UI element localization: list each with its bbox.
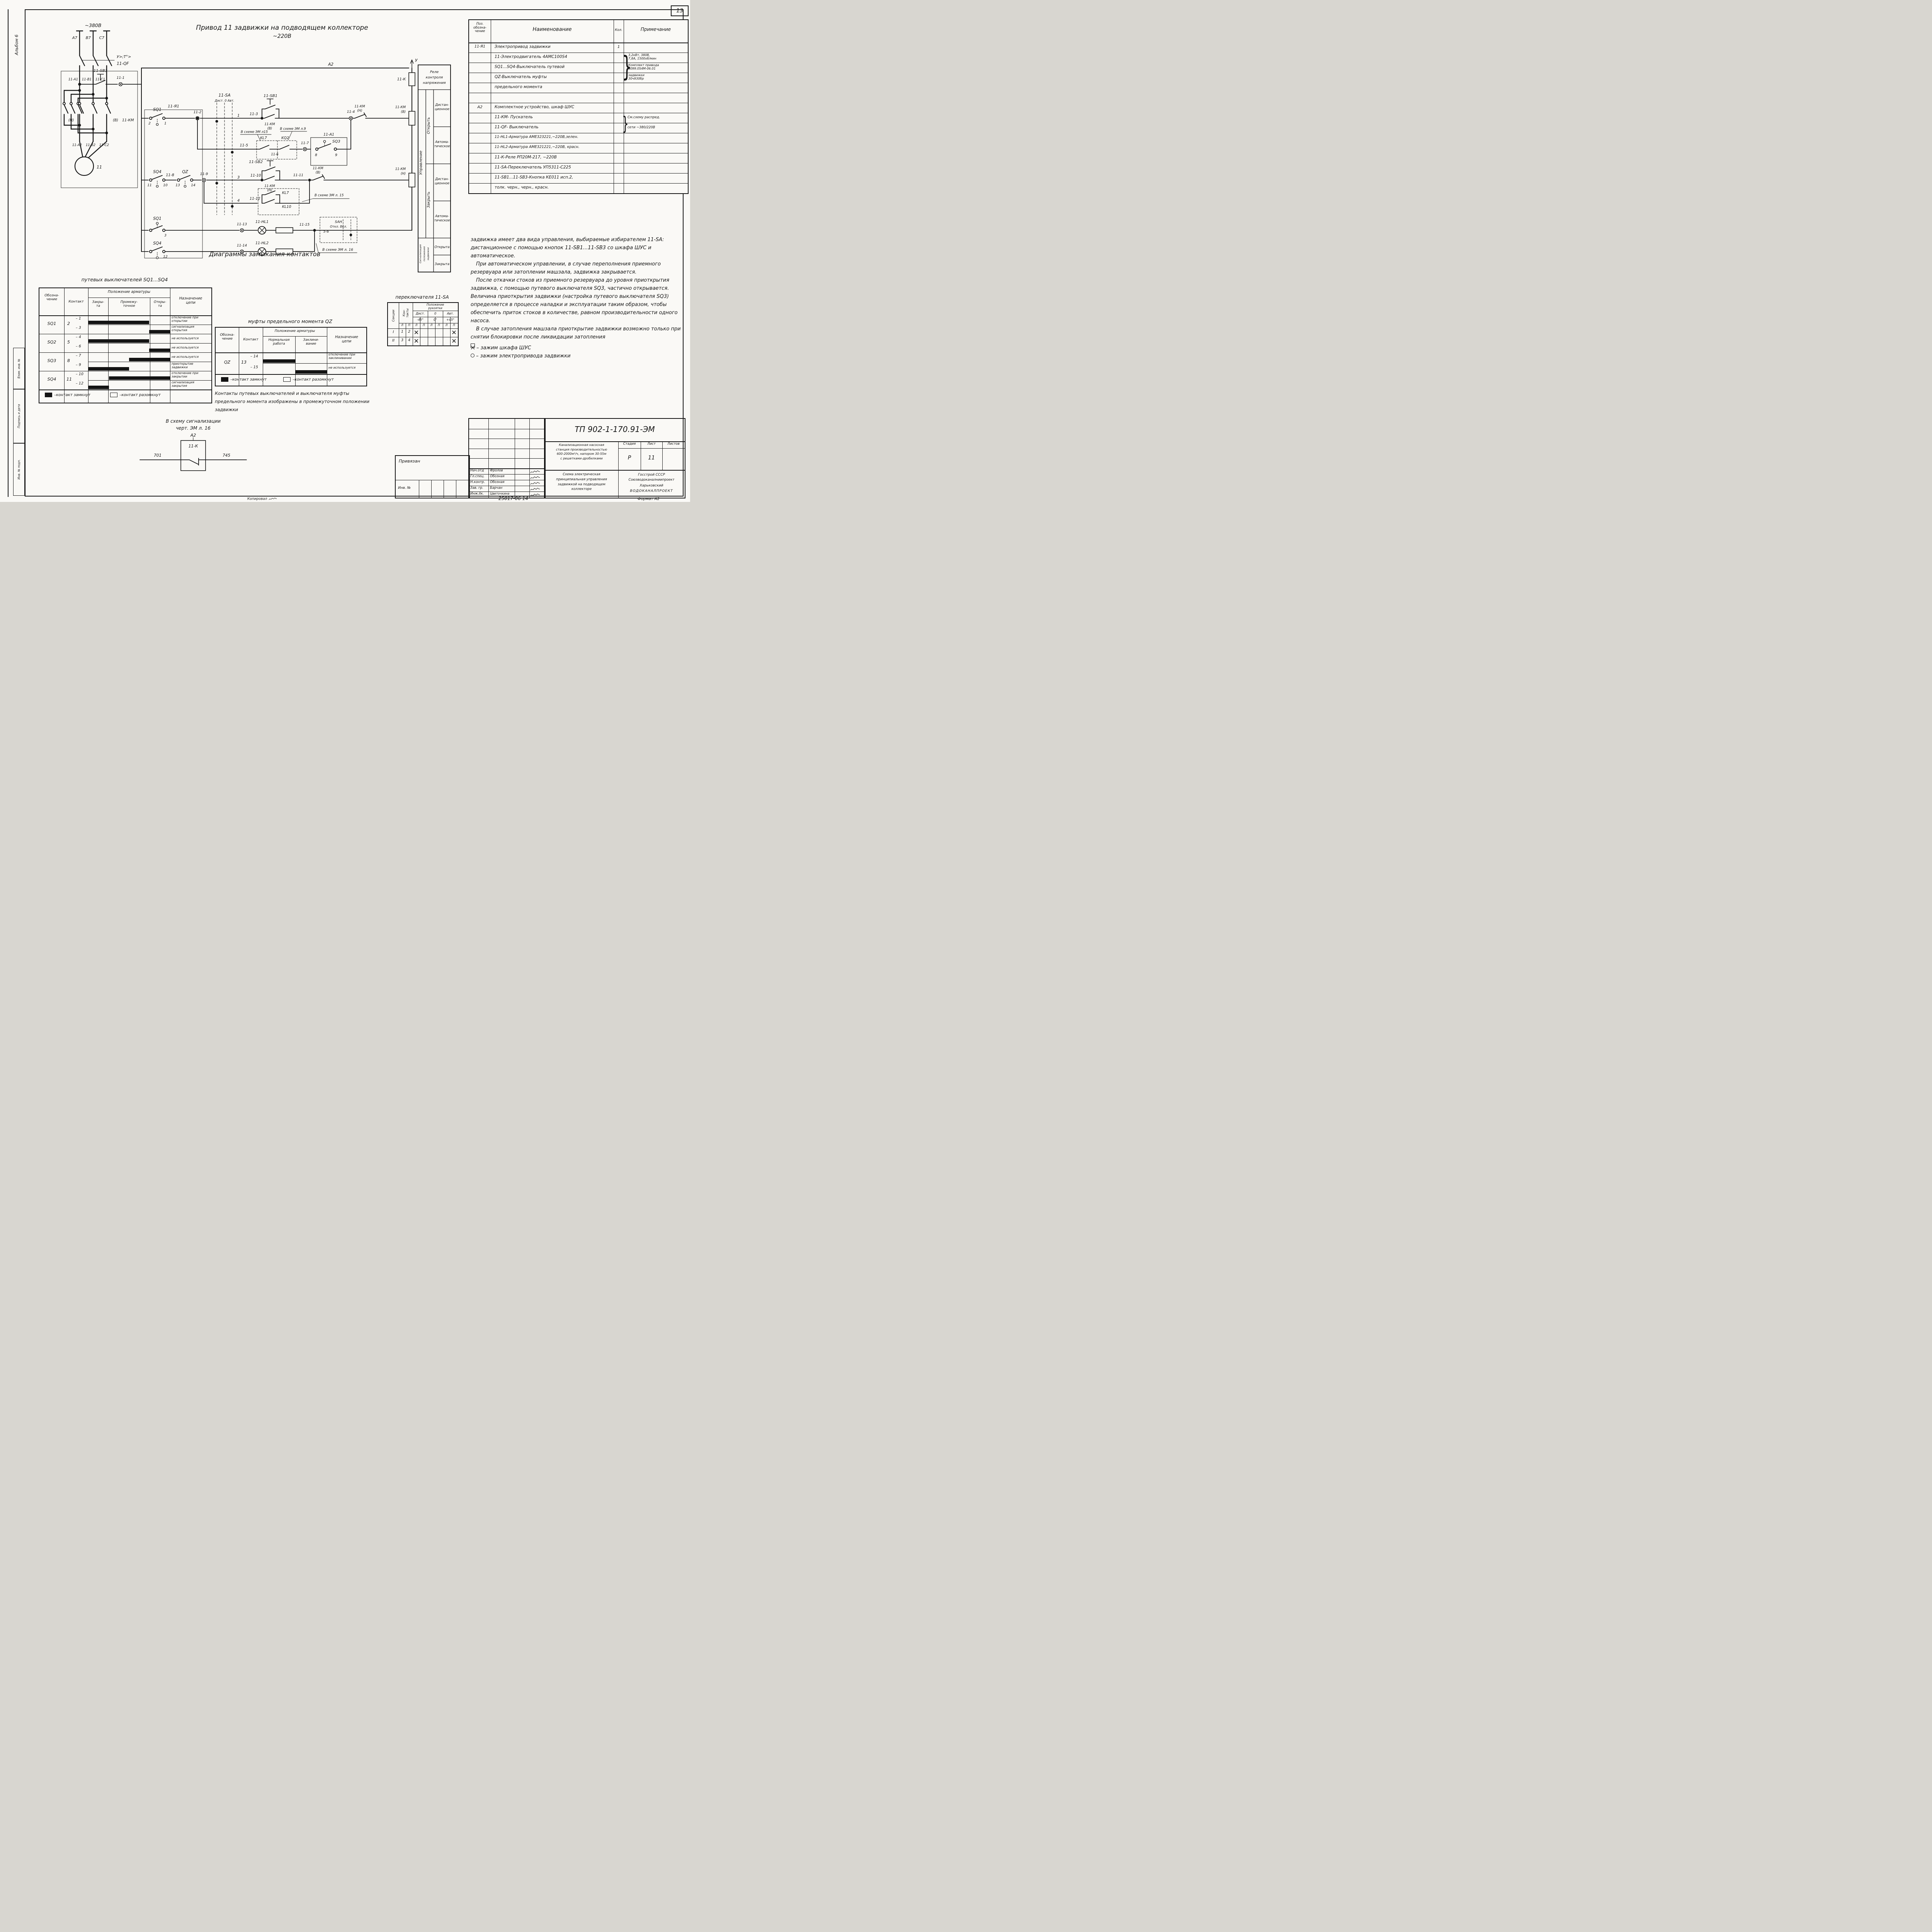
t1-p2: не используется bbox=[172, 346, 211, 350]
parts-header-pos: Поз. обозна- чение bbox=[469, 22, 491, 34]
legend-open-text: –контакт разомкнут bbox=[119, 393, 160, 397]
t1-header-open: Откры- та bbox=[150, 301, 170, 308]
role: Нач.отд bbox=[470, 469, 484, 473]
neutral-u-label: У bbox=[415, 58, 418, 63]
role-name: Обозная bbox=[490, 475, 505, 479]
parts-header-name: Наименование bbox=[491, 27, 614, 33]
qf-label: 11-QF bbox=[117, 61, 129, 66]
stamp-vzam-label: Взам. инв. № bbox=[17, 359, 21, 379]
note-em15b-label: В схеме ЭМ л. 15 bbox=[315, 194, 344, 197]
ft-relay-line2: контроля bbox=[426, 76, 443, 80]
signature bbox=[530, 492, 540, 499]
t2-header-jam: Заклини- вание bbox=[295, 338, 327, 346]
doc-designation: ТП 902-1-170.91-ЭМ bbox=[545, 425, 685, 434]
sq4-contact-10: 10 bbox=[163, 184, 168, 187]
schematic-canvas: ~380В А7 В7 С7 У>;Т°> 11-QF 11-А1 11-В1 … bbox=[26, 22, 466, 277]
wire-11-8-label: 11-8 bbox=[166, 173, 174, 177]
selfhold-close-label1: 11-КМ bbox=[264, 184, 275, 188]
phase-c7-label: С7 bbox=[99, 36, 105, 40]
t1-sub2: – 9 bbox=[76, 363, 87, 367]
t3-d1: -45° bbox=[413, 318, 428, 322]
contact-kl10-label: KL10 bbox=[282, 205, 291, 209]
ft-zakryta: Закрыта bbox=[435, 262, 449, 266]
t2-sub2: – 15 bbox=[250, 366, 263, 370]
contactor-close-coil bbox=[409, 173, 415, 187]
t1-dev: SQ2 bbox=[39, 340, 64, 345]
contact-bar bbox=[129, 358, 170, 361]
wire-11-6-label: 11-6 bbox=[271, 153, 279, 156]
titleblock-signatures: Нач.отд Фролов Гл.спец. Обозная Н.контр.… bbox=[468, 418, 546, 498]
legend-closed-text: –контакт замкнут bbox=[54, 393, 90, 397]
ft-avt1a: Автома- bbox=[435, 140, 449, 144]
org-line2: Союзводоканалниипроект bbox=[618, 478, 685, 482]
switch-sq4b-label: SQ4 bbox=[153, 241, 162, 246]
part-name: Электропривод задвижки bbox=[495, 45, 612, 49]
sq3-contact-8: 8 bbox=[315, 153, 317, 157]
t3-row-contact: 4 bbox=[406, 338, 413, 343]
part-name: 11-HL2-Арматура АМЕ321221,~220В, красн. bbox=[495, 145, 613, 150]
diagrams-sub1: путевых выключателей SQ1...SQ4 bbox=[39, 277, 211, 282]
t3-g1: Дист. bbox=[413, 312, 428, 316]
contactor-v-label: (В) bbox=[113, 118, 118, 122]
t1-header-obozn: Обозна- чение bbox=[39, 294, 64, 301]
part-name: 11-SА-Переключатель УП5311-С225 bbox=[495, 165, 612, 170]
lamp-hl1-label: 11-HL1 bbox=[255, 220, 269, 224]
cabinet-terminal-icon bbox=[471, 344, 475, 348]
selfhold-open-label1: 11-КМ bbox=[264, 122, 275, 126]
phase-b1-label: 11-В1 bbox=[82, 78, 92, 82]
parts-header-qty: Кол. bbox=[614, 29, 624, 32]
ft-dist1a: Дистан- bbox=[435, 103, 449, 107]
part-pos: А2 bbox=[469, 105, 491, 109]
sq1-contact-2: 2 bbox=[148, 122, 151, 126]
t3-col-l: Л bbox=[443, 324, 450, 327]
terminal-11-7-label: 11-7 bbox=[301, 141, 309, 145]
switch-sq4-label: SQ4 bbox=[153, 170, 162, 174]
selector-sa-label: 11-SА bbox=[219, 93, 231, 98]
org-line4: ВОДОКАНАЛПРОЕКТ bbox=[618, 489, 685, 493]
interlock-n-label2: (Н) bbox=[357, 109, 362, 113]
part-name: 11-HL1-Арматура АМЕ323221,~220В,зелен. bbox=[495, 135, 613, 139]
wire-11-15-label: 11-15 bbox=[299, 223, 310, 227]
parts-brace: } bbox=[622, 114, 629, 133]
part-name: толк. черн., черн., красн. bbox=[495, 185, 612, 190]
parts-brace: } bbox=[622, 53, 632, 80]
line-1-number: 1 bbox=[237, 114, 240, 118]
line-4-number: 4 bbox=[237, 199, 240, 203]
t2-header-norm: Нормальная работа bbox=[263, 338, 295, 346]
ft-sig1: Сигнализация bbox=[419, 245, 422, 264]
t2-header-obozn: Обозна- чение bbox=[216, 333, 239, 341]
format-label: Формат А2 bbox=[638, 497, 660, 501]
interlock-v-label2: (В) bbox=[316, 171, 320, 175]
t3-mark: ✕ bbox=[450, 330, 458, 336]
ft-avt2b: тическое bbox=[434, 219, 450, 223]
ft-avt1b: тическое bbox=[434, 145, 450, 148]
t3-d3: +45° bbox=[443, 318, 458, 322]
paragraph-1: задвижка имеет два вида управления, выби… bbox=[471, 236, 686, 260]
san-switch-label: SАН bbox=[335, 220, 342, 224]
wire-11-5-label: 11-5 bbox=[240, 143, 248, 148]
open-contact-icon bbox=[283, 377, 291, 382]
t1-p2: приоткрытие задвижки bbox=[172, 362, 211, 369]
wire-11-11-label: 11-11 bbox=[293, 173, 303, 177]
motor-number-label: 11 bbox=[97, 165, 102, 170]
t1-p1: отключение при закрытии bbox=[172, 372, 211, 379]
legend-open-text: –контакт разомкнут bbox=[293, 378, 333, 382]
phase-a2-label: 11-А2 bbox=[72, 143, 82, 147]
sq1-contact-3: 3 bbox=[164, 234, 167, 238]
t1-sub2: – 12 bbox=[76, 382, 88, 386]
part-note: задвижки 30ч930бр bbox=[628, 74, 687, 81]
part-note: Комплект привода 6099.0S4М-06.01 bbox=[628, 64, 687, 71]
closed-contact-icon bbox=[221, 377, 228, 382]
sq4-contact-11: 11 bbox=[147, 184, 151, 187]
t3-row-contact: 2 bbox=[406, 330, 413, 334]
stadia-header: Стадия bbox=[618, 442, 641, 446]
parts-header-note: Примечание bbox=[624, 27, 688, 32]
t1-legend: –контакт замкнут –контакт разомкнут bbox=[45, 393, 211, 397]
t3-sections-wrap: Секции bbox=[388, 303, 399, 328]
ft-zakryt: Закрыть bbox=[427, 192, 431, 208]
t1-sub2: – 3 bbox=[76, 326, 87, 330]
t3-row-section: II bbox=[388, 338, 399, 343]
t3-row-section: I bbox=[388, 330, 399, 334]
description-text: задвижка имеет два вида управления, выби… bbox=[471, 236, 686, 360]
t1-sub1: – 4 bbox=[76, 335, 87, 340]
part-qty: 1 bbox=[614, 45, 624, 49]
sq1-contact-1: 1 bbox=[164, 122, 167, 126]
qz-contacts-table: Обозна- чение Контакт Положение арматуры… bbox=[215, 327, 367, 386]
open-contact-icon bbox=[110, 393, 117, 397]
t1-header-closed: Закры- та bbox=[88, 301, 108, 308]
t3-col-l: Л bbox=[413, 324, 420, 327]
control-section bbox=[80, 60, 415, 259]
paragraph-4: В случае затопления машзала приоткрытие … bbox=[471, 325, 686, 341]
contact-bar bbox=[88, 386, 109, 389]
t1-p2: сигнализация открытия bbox=[172, 325, 211, 332]
t2-p2: не используется bbox=[328, 366, 366, 370]
page-number: 13 bbox=[676, 8, 683, 14]
contact-bar bbox=[263, 359, 296, 363]
t3-col-p: П bbox=[450, 324, 458, 327]
drive-terminal-icon bbox=[471, 354, 474, 357]
relay-11K-coil bbox=[409, 73, 415, 86]
t3-row-contact: 1 bbox=[399, 330, 406, 334]
contactor-open-coil bbox=[409, 111, 415, 125]
ft-upravlenie: Управление bbox=[419, 151, 423, 175]
t2-header-naznach: Назначение цепи bbox=[327, 335, 366, 344]
contact-bar bbox=[296, 370, 327, 374]
part-pos: 11-Я1 bbox=[469, 45, 491, 49]
switch-sq3-label: SQ3 bbox=[332, 139, 340, 144]
title-block: Привязан Инв. № Нач.отд Фролов Гл.спец. … bbox=[395, 418, 684, 497]
part-name: QZ-Выключатель муфты bbox=[495, 75, 612, 80]
ft-sig3: задвижки bbox=[427, 247, 430, 260]
role-name: Барчан bbox=[490, 486, 502, 490]
legend-terminal-drive-text: – зажим электропривода задвижки bbox=[476, 353, 571, 359]
legend-terminal-cabinet: – зажим шкафа ШУС bbox=[471, 344, 686, 352]
t3-col-p: П bbox=[406, 324, 413, 327]
coil-open-label2: (В) bbox=[401, 110, 406, 114]
part-name: 11-QF- Выключатель bbox=[495, 125, 612, 130]
box-11a1-label: 11-А1 bbox=[323, 133, 334, 137]
selfhold-close-label2: (Н) bbox=[267, 189, 272, 192]
terminal-701-label: 701 bbox=[154, 453, 162, 458]
part-name: 11-SВ1...11-SВ3-Кнопка КЕ011 исп.2, bbox=[495, 175, 612, 180]
terminal-11-13-label: 11-13 bbox=[237, 223, 247, 226]
contact-kl7-label: KL7 bbox=[260, 136, 267, 140]
t1-common: 8 bbox=[67, 359, 75, 363]
t3-col-p: П bbox=[435, 324, 443, 327]
terminal-11-4-label: 11-4 bbox=[347, 110, 355, 114]
terminal-11-9-label: 11-9 bbox=[200, 172, 208, 176]
note-em15-label: В схеме ЭМ л15 bbox=[241, 130, 268, 134]
inv-label: Инв. № bbox=[398, 486, 411, 490]
phase-b2-label: 11-В2 bbox=[86, 143, 95, 147]
sa-selector-table: Секции Кон- такты Положение рукоятки Дис… bbox=[387, 302, 459, 346]
t3-g3: Авт. bbox=[443, 312, 458, 316]
lamp-hl2-label: 11-HL2 bbox=[255, 241, 269, 245]
signal-note-line1: В схему сигнализации bbox=[166, 418, 221, 424]
diagrams-sub2: муфты предельного момента QZ bbox=[215, 318, 366, 324]
t2-dev: QZ bbox=[216, 360, 239, 365]
sq3-contact-9: 9 bbox=[335, 153, 337, 157]
role-name: Цветочкина bbox=[490, 492, 509, 496]
part-name: Комплектное устройство, шкаф ШУС bbox=[495, 105, 612, 110]
selfhold-open-label2: (В) bbox=[267, 127, 272, 131]
role: Зав. гр. bbox=[470, 486, 483, 490]
t1-p1: отключение при открытии bbox=[172, 316, 211, 323]
paragraph-2: При автоматическом управлении, в случае … bbox=[471, 260, 686, 276]
t2-legend: –контакт замкнут –контакт разомкнут bbox=[221, 377, 366, 382]
album-label: Альбом 6 bbox=[14, 34, 19, 55]
t3-g2: 0 bbox=[428, 312, 443, 316]
page-number-box: 13 bbox=[671, 5, 689, 16]
san-terminals-label: 5-6 bbox=[323, 230, 329, 234]
t2-sub1: – 14 bbox=[250, 355, 263, 359]
contact-kl7b-label: KL7 bbox=[282, 191, 289, 195]
phase-b7-label: В7 bbox=[86, 36, 91, 40]
interlock-n-label1: 11-КМ bbox=[354, 105, 365, 109]
part-name: предельного момента bbox=[495, 85, 612, 90]
wire-11-12-label: 11-12 bbox=[250, 197, 260, 201]
contact-bar bbox=[88, 367, 129, 371]
part-name: 11-Электродвигатель 4АМС100S4 bbox=[495, 55, 612, 60]
role: Н.контр. bbox=[470, 481, 485, 485]
parts-table: Поз. обозна- чение Наименование Кол. При… bbox=[468, 19, 689, 194]
listov-header: Листов bbox=[662, 442, 685, 446]
t3-d2: 0° bbox=[428, 318, 443, 322]
stamp-podpis: Подпись и дата bbox=[13, 389, 25, 444]
qf-release-note: У>;Т°> bbox=[117, 55, 131, 59]
switch-sq1-label: SQ1 bbox=[153, 107, 162, 112]
project-name: Канализационная насосная станция произво… bbox=[546, 443, 617, 461]
terminal-11-2-label: 11-2 bbox=[194, 111, 202, 114]
titleblock-annex: Привязан Инв. № bbox=[395, 455, 470, 498]
contact-bar bbox=[149, 349, 170, 352]
contact-bar bbox=[149, 330, 170, 333]
t3-mark: ✕ bbox=[450, 338, 458, 344]
t1-sub1: – 7 bbox=[76, 354, 87, 358]
t1-header-kontakt: Контакт bbox=[64, 300, 88, 304]
t1-common: 11 bbox=[66, 377, 75, 382]
qz-contact-14: 14 bbox=[191, 184, 196, 187]
t1-p1: не используется bbox=[172, 337, 211, 340]
role-name: Фролов bbox=[490, 469, 503, 473]
t3-col-l: Л bbox=[428, 324, 435, 327]
ft-avt2a: Автома- bbox=[435, 214, 449, 218]
part-name: 11-К-Реле РП20М-217, ~220В bbox=[495, 155, 612, 160]
t1-header-naznach: Назначение цепи bbox=[170, 297, 211, 305]
drive-box-label: 11-Я1 bbox=[168, 104, 179, 109]
ft-dist2a: Дистан- bbox=[435, 177, 449, 181]
t2-header-pos: Положение арматуры bbox=[263, 329, 327, 333]
t1-common: 5 bbox=[67, 340, 75, 345]
ft-dist1b: ционное bbox=[435, 107, 449, 111]
cabinet-a2-label: А2 bbox=[328, 62, 333, 67]
phase-c1-label: 11-С1 bbox=[95, 78, 105, 82]
t1-header-mid: Промежу- точное bbox=[108, 301, 150, 308]
t1-p1: не используется bbox=[172, 355, 211, 359]
part-note: 3,2кВт, 380В, 7,8А, 1500об/мин bbox=[628, 54, 687, 61]
button-sb2-label: 11-SВ2 bbox=[249, 160, 263, 164]
scheme-name: Схема электрическая принципиальная управ… bbox=[546, 472, 617, 492]
relay-11k-label: 11-К bbox=[397, 77, 406, 82]
t1-common: 2 bbox=[67, 321, 75, 326]
ft-relay-line3: напряжения bbox=[423, 81, 446, 85]
legend-terminal-drive: – зажим электропривода задвижки bbox=[471, 352, 686, 360]
stamp-inv-label: Инв. № подл. bbox=[17, 459, 21, 480]
phase-a7-label: А7 bbox=[72, 36, 78, 40]
contacts-position-note: Контакты путевых выключателей и выключат… bbox=[215, 389, 447, 414]
org-line1: Госстрой СССР bbox=[618, 473, 685, 477]
role: Гл.спец. bbox=[470, 475, 485, 479]
part-note: См.схему распред. bbox=[628, 116, 687, 120]
t3-contacts-wrap: Кон- такты bbox=[399, 303, 413, 323]
list-value: 11 bbox=[641, 455, 662, 461]
ft-relay-line1: Реле bbox=[430, 70, 439, 74]
t3-row-contact: 3 bbox=[399, 338, 406, 343]
t3-col-p: П bbox=[420, 324, 428, 327]
t1-dev: SQ1 bbox=[39, 321, 64, 326]
t2-p1: отключение при заклинивании bbox=[328, 353, 366, 360]
stadia-value: Р bbox=[618, 455, 641, 461]
legend-terminal-cabinet-text: – зажим шкафа ШУС bbox=[476, 345, 531, 351]
list-header: Лист bbox=[641, 442, 662, 446]
paragraph-3: После откачки стоков из приемного резерв… bbox=[471, 276, 686, 325]
san-positions-label: Откл. Вкл. bbox=[330, 225, 347, 228]
t1-header-pos: Положение арматуры bbox=[88, 290, 170, 294]
t1-sub1: – 10 bbox=[76, 372, 88, 377]
t1-dev: SQ3 bbox=[39, 359, 64, 363]
switch-sq1b-label: SQ1 bbox=[153, 216, 162, 221]
diagrams-sub3: переключателя 11-SА bbox=[387, 294, 457, 300]
signal-a2-label: А2 bbox=[190, 433, 196, 438]
ft-otkryta: Открыта bbox=[434, 245, 449, 249]
note-em9-label: В схеме ЭМ л.9 bbox=[280, 127, 306, 131]
legend-closed-text: –контакт замкнут bbox=[230, 378, 267, 382]
closed-contact-icon bbox=[45, 393, 52, 397]
org-line3: Харьковский bbox=[618, 484, 685, 488]
t3-mark: ✕ bbox=[413, 338, 420, 344]
contactor-n-label: (Н) bbox=[68, 118, 74, 122]
terminal-11-14-label: 11-14 bbox=[237, 244, 247, 248]
line-3-number: 3 bbox=[237, 175, 240, 180]
t1-sub1: – 1 bbox=[76, 317, 87, 321]
t1-dev: SQ4 bbox=[39, 377, 64, 382]
terminal-11-1-label: 11-1 bbox=[117, 76, 124, 80]
coil-close-label2: (Н) bbox=[401, 172, 406, 176]
role-name: Обозная bbox=[490, 481, 505, 485]
phase-a1-label: 11-А1 bbox=[68, 78, 78, 82]
t3-mark: ✕ bbox=[413, 330, 420, 336]
kopiroval-label: Копировал bbox=[247, 497, 277, 502]
titleblock-main: ТП 902-1-170.91-ЭМ Канализационная насос… bbox=[544, 418, 685, 498]
sq-contacts-table: Обозна- чение Контакт Положение арматуры… bbox=[39, 287, 212, 403]
t3-col-l: Л bbox=[399, 324, 406, 327]
switch-qz-label: QZ bbox=[182, 170, 188, 174]
supply-voltage-label: ~380В bbox=[85, 22, 102, 28]
signal-note-line2: черт. ЭМ л. 16 bbox=[176, 425, 211, 431]
part-name: 11-КМ- Пускатель bbox=[495, 115, 612, 120]
qz-contact-13: 13 bbox=[175, 184, 180, 187]
part-name: SQ1...SQ4-Выключатель путевой bbox=[495, 65, 612, 70]
part-note: сети ~380/220В bbox=[628, 126, 687, 130]
contact-bar bbox=[88, 321, 149, 324]
role: Инж.IIк. bbox=[470, 492, 484, 496]
wire-11-3-label: 11-3 bbox=[250, 112, 258, 116]
button-sb3-label: 11-SВ3 bbox=[94, 69, 107, 73]
kopiroval-text: Копировал bbox=[247, 497, 267, 501]
privyazan-label: Привязан bbox=[399, 459, 420, 464]
signal-circuit-note: В схему сигнализации черт. ЭМ л. 16 А2 1… bbox=[135, 417, 251, 478]
t1-p2: сигнализация закрытия bbox=[172, 381, 211, 388]
stamp-podpis-label: Подпись и дата bbox=[17, 404, 21, 428]
diagrams-title: Диаграммы замыкания контактов bbox=[162, 250, 367, 258]
ft-dist2b: ционное bbox=[435, 182, 449, 185]
album-label-wrap: Альбом 6 bbox=[11, 25, 22, 65]
contactor-km-label: 11-КМ bbox=[122, 118, 134, 122]
t3-sections-label: Секции bbox=[392, 310, 395, 321]
binding-edge-line bbox=[8, 9, 9, 497]
coil-open-label1: 11-КМ bbox=[395, 105, 406, 109]
button-sb1-label: 11-SВ1 bbox=[264, 94, 277, 98]
t1-sub2: – 6 bbox=[76, 345, 87, 349]
ft-sig2: положения bbox=[423, 247, 426, 262]
ft-otkryt: Открыть bbox=[427, 117, 431, 134]
t3-pos-label: Положение рукоятки bbox=[413, 303, 458, 310]
t2-common: 13 bbox=[241, 360, 250, 365]
phase-c2-label: 11-С2 bbox=[99, 143, 109, 147]
inventory-doc-number: 25017-06 14 bbox=[498, 496, 528, 501]
wire-11-10-label: 11-10 bbox=[250, 173, 261, 178]
contact-bar bbox=[88, 339, 149, 343]
coil-close-label1: 11-КМ bbox=[395, 167, 406, 171]
stamp-inv: Инв. № подл. bbox=[13, 443, 25, 496]
stamp-vzam: Взам. инв. № bbox=[13, 348, 25, 389]
interlock-v-label1: 11-КМ bbox=[313, 167, 323, 170]
selector-sa-positions: Дист. 0 Авт. bbox=[214, 99, 235, 102]
terminal-745-label: 745 bbox=[223, 453, 230, 458]
t3-contacts-label: Кон- такты bbox=[402, 308, 409, 318]
contact-kq2-label: KQ2 bbox=[281, 136, 289, 140]
signal-relay-k-label: 11-К bbox=[189, 444, 198, 449]
drawing-sheet: 13 Альбом 6 Взам. инв. № Подпись и дата … bbox=[0, 0, 690, 502]
contact-bar bbox=[109, 376, 170, 380]
motor-symbol bbox=[75, 157, 94, 175]
t2-header-kontakt: Контакт bbox=[239, 338, 263, 342]
